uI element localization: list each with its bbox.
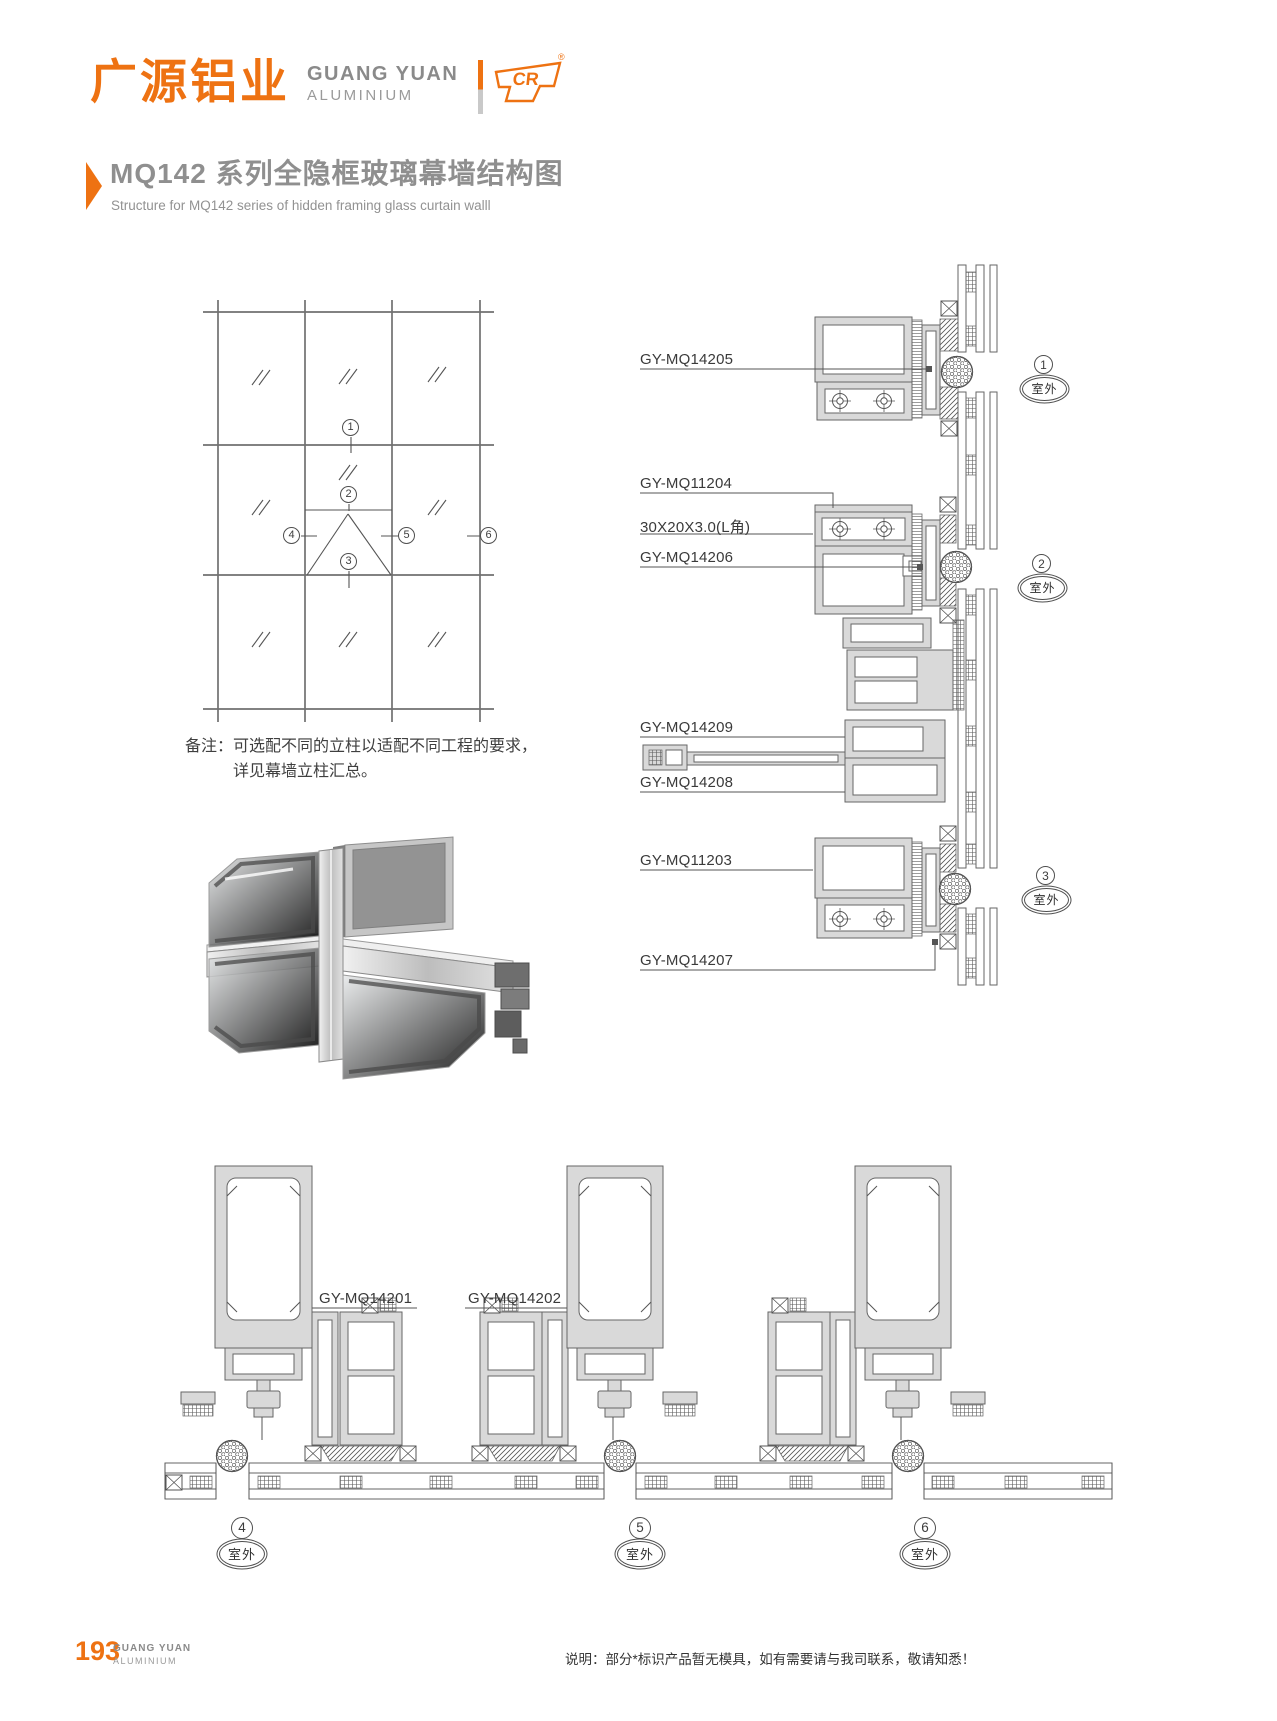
part-label-gy-mq11204: GY-MQ11204: [640, 475, 732, 492]
section-marker-3: 3: [1036, 866, 1055, 885]
outdoor-badge-3: 室外: [1024, 888, 1069, 912]
page-subtitle: Structure for MQ142 series of hidden fra…: [111, 199, 491, 213]
glass-bands: [165, 1463, 1112, 1499]
section-marker-4: 4: [231, 1517, 253, 1539]
footer-note: 说明：部分*标识产品暂无模具，如有需要请与我司联系，敬请知悉！: [565, 1648, 975, 1668]
foam-rod-5: [605, 1441, 636, 1472]
part-label-gy-mq14201: GY-MQ14201: [319, 1290, 412, 1307]
note-block: 备注： 可选配不同的立柱以适配不同工程的要求， 详见幕墙立柱汇总。: [185, 735, 537, 785]
foam-rod-4: [217, 1441, 248, 1472]
assembly-3d-render: [195, 835, 535, 1080]
elevation-diagram: [180, 290, 512, 740]
part-label-gy-mq14205: GY-MQ14205: [640, 351, 733, 368]
elevation-marker-4: 4: [283, 527, 300, 544]
brand-name-cn: 广源铝业: [90, 58, 290, 105]
footer-brand: GUANG YUAN ALUMINIUM: [113, 1644, 191, 1666]
outdoor-badge-4: 室外: [219, 1541, 265, 1567]
catalog-page: 广源铝业 GUANG YUAN ALUMINIUM CR ® MQ142 系列全…: [0, 0, 1277, 1721]
part-label-gy-mq14206: GY-MQ14206: [640, 549, 733, 566]
svg-text:CR: CR: [512, 69, 540, 89]
brand-logo-en: GUANG YUAN ALUMINIUM: [307, 64, 458, 103]
brand-logo-cn: 广源铝业: [90, 58, 290, 105]
outdoor-badge-2: 室外: [1020, 576, 1065, 600]
joint3-profiles: [815, 826, 956, 949]
part-label-gy-mq14208: GY-MQ14208: [640, 774, 733, 791]
elevation-annotations: [252, 367, 481, 647]
joint2-profiles: [815, 497, 956, 623]
part-label-gy-mq14209: GY-MQ14209: [640, 719, 733, 736]
horizontal-section-drawing: [160, 1080, 1120, 1520]
elevation-marker-3: 3: [340, 553, 357, 570]
part-label-l-angle: 30X20X3.0(L角): [640, 516, 750, 537]
title-marker-icon: [86, 162, 102, 210]
logo-divider: [478, 60, 483, 114]
elevation-marker-5: 5: [398, 527, 415, 544]
mullion-section-c: [760, 1166, 985, 1461]
brand-mark-icon: CR: [494, 58, 562, 110]
page-title: MQ142 系列全隐框玻璃幕墙结构图: [110, 160, 564, 188]
note-label: 备注：: [185, 735, 233, 785]
foam-rod-2: [941, 552, 972, 583]
foam-rod-6: [893, 1441, 924, 1472]
outdoor-badge-5: 室外: [617, 1541, 663, 1567]
section-marker-5: 5: [629, 1517, 651, 1539]
outdoor-badge-1: 室外: [1022, 377, 1067, 401]
foam-rod-3: [940, 874, 971, 905]
outdoor-badge-6: 室外: [902, 1541, 948, 1567]
section-marker-6: 6: [914, 1517, 936, 1539]
vertical-section-drawing: [600, 258, 1100, 998]
registered-mark: ®: [558, 52, 565, 62]
mullion-section-a: [181, 1166, 416, 1461]
note-text: 可选配不同的立柱以适配不同工程的要求， 详见幕墙立柱汇总。: [233, 735, 537, 785]
elevation-marker-6: 6: [480, 527, 497, 544]
render-shapes: [207, 837, 529, 1079]
part-label-gy-mq14202: GY-MQ14202: [468, 1290, 561, 1307]
section-marker-1: 1: [1034, 355, 1053, 374]
part-label-gy-mq11203: GY-MQ11203: [640, 852, 732, 869]
brand-name-en-1: GUANG YUAN: [307, 64, 458, 84]
foam-rod-1: [942, 357, 973, 388]
brand-name-en-2: ALUMINIUM: [307, 88, 458, 103]
elevation-marker-2: 2: [340, 486, 357, 503]
mullion-section-b: [472, 1166, 697, 1461]
section-marker-2: 2: [1032, 554, 1051, 573]
part-label-gy-mq14207: GY-MQ14207: [640, 952, 733, 969]
elevation-marker-1: 1: [342, 419, 359, 436]
